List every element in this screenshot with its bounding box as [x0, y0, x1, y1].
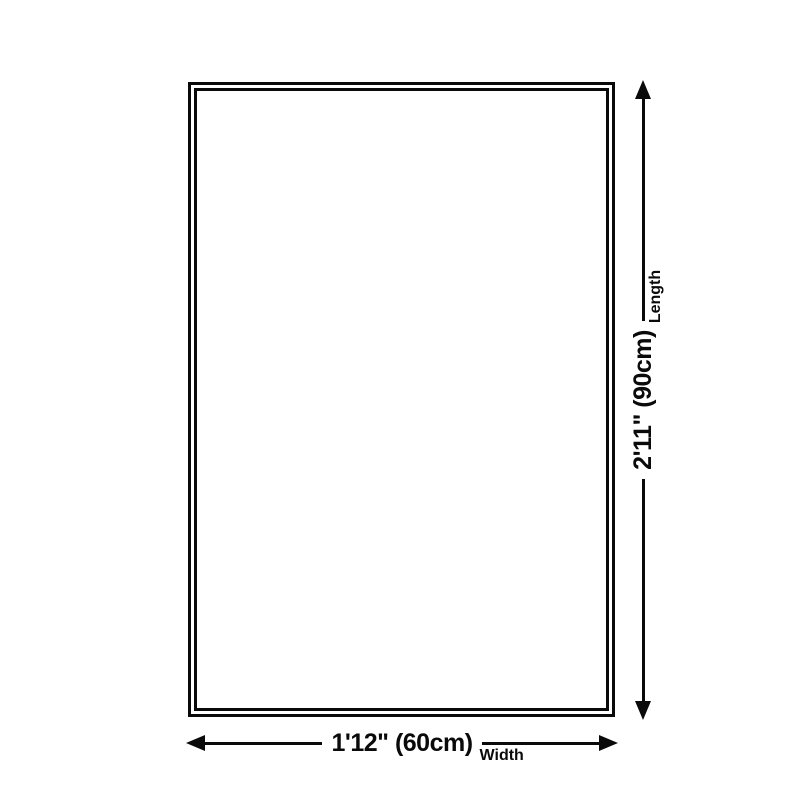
- width-label: Width: [480, 748, 524, 764]
- length-line-end: Length: [642, 99, 645, 321]
- width-dimension: 1'12" (60cm) Width: [186, 724, 618, 762]
- length-line-start: [642, 479, 645, 701]
- product-outline-inner: [194, 88, 609, 711]
- arrow-up-icon: [635, 80, 651, 99]
- width-line-start: [205, 742, 322, 745]
- arrow-left-icon: [186, 735, 205, 751]
- width-value: 1'12" (60cm): [331, 731, 472, 756]
- product-outline: [188, 82, 615, 717]
- dimension-diagram: 1'12" (60cm) Width 2'11" (90cm) Length: [0, 0, 800, 800]
- arrow-down-icon: [635, 701, 651, 720]
- length-dimension: 2'11" (90cm) Length: [624, 80, 662, 720]
- arrow-right-icon: [599, 735, 618, 751]
- length-value: 2'11" (90cm): [631, 330, 656, 470]
- width-line-end: Width: [482, 742, 599, 745]
- length-label: Length: [648, 270, 664, 323]
